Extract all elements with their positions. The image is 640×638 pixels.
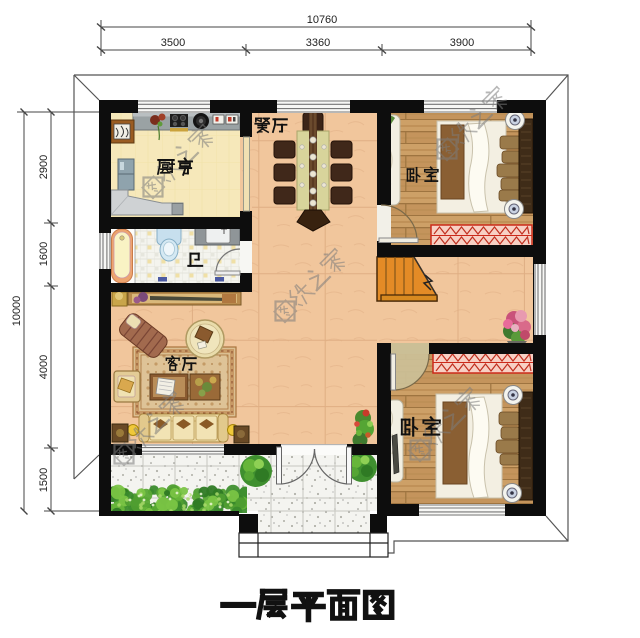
svg-text:3500: 3500 bbox=[161, 37, 185, 49]
svg-text:3360: 3360 bbox=[306, 37, 330, 49]
svg-text:10000: 10000 bbox=[11, 296, 23, 327]
svg-text:2900: 2900 bbox=[38, 155, 50, 179]
svg-text:4000: 4000 bbox=[38, 355, 50, 379]
svg-text:1600: 1600 bbox=[38, 242, 50, 266]
svg-text:10760: 10760 bbox=[307, 14, 338, 26]
svg-text:3900: 3900 bbox=[450, 37, 474, 49]
svg-text:1500: 1500 bbox=[38, 468, 50, 492]
